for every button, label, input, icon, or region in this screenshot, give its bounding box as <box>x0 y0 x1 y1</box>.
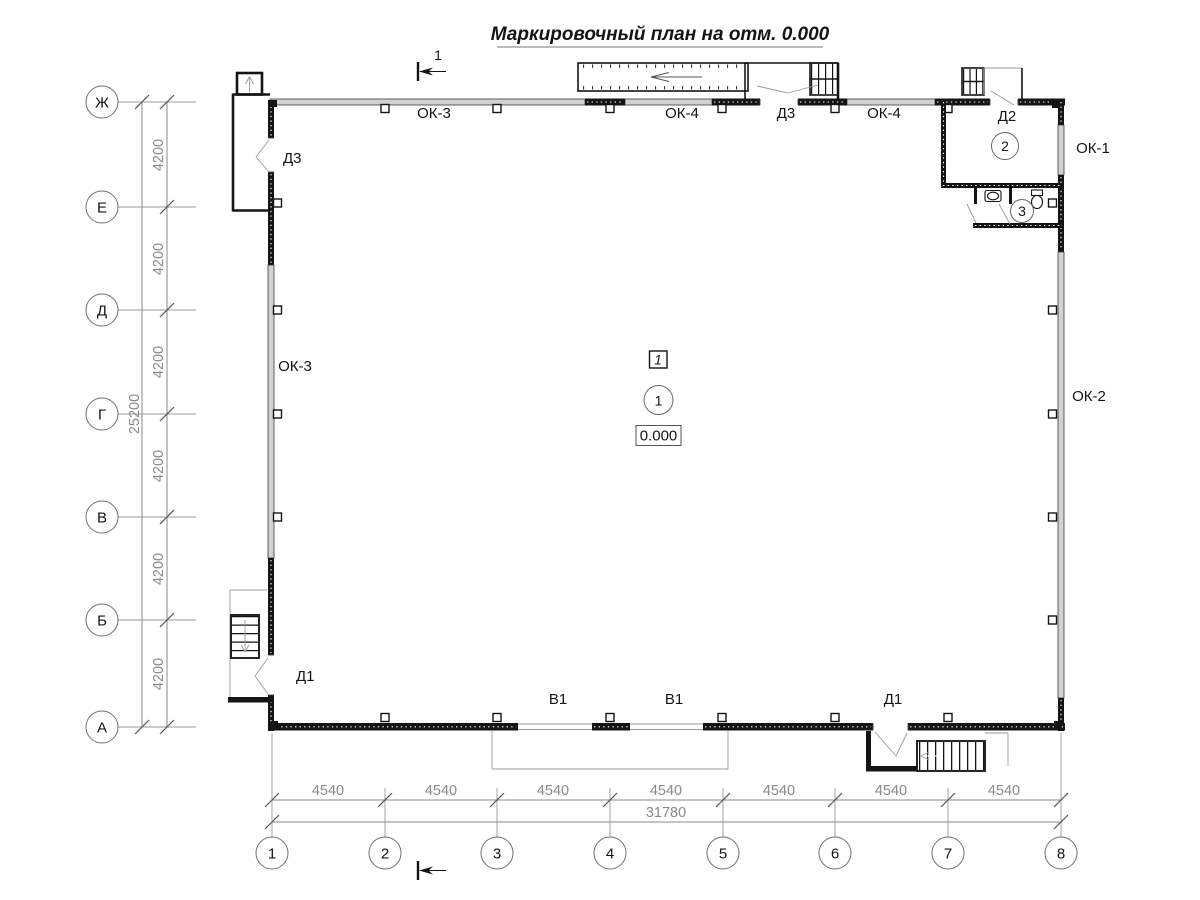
dim-row-5: 4200 <box>151 553 167 585</box>
opening-jambs <box>268 99 1018 731</box>
axis-row-g: Г <box>98 407 106 424</box>
dim-col-1: 4540 <box>312 783 344 799</box>
page-title: Маркировочный план на отм. 0.000 <box>491 24 830 45</box>
label-d3-top: Д3 <box>777 105 796 122</box>
section-number: 1 <box>434 47 442 63</box>
dim-col-5: 4540 <box>763 783 795 799</box>
floor-plan-canvas: Маркировочный план на отм. 0.000 <box>0 0 1200 900</box>
dim-col-total: 31780 <box>646 805 686 821</box>
pilasters-bottom <box>381 714 952 722</box>
dim-row-3: 4200 <box>151 346 167 378</box>
label-ok4-right: ОК-4 <box>867 105 901 122</box>
porch-bottom-left <box>228 590 273 703</box>
building-perimeter <box>268 99 1065 732</box>
elevation-value: 0.000 <box>640 428 678 445</box>
porch-bottom-right <box>866 731 1008 772</box>
dim-col-7: 4540 <box>988 783 1020 799</box>
axis-col-5: 5 <box>719 846 727 863</box>
axis-col-7: 7 <box>944 846 952 863</box>
col-spacing-dims: 4540 4540 4540 4540 4540 4540 4540 31780 <box>312 783 1020 821</box>
stair-entry-d2 <box>962 68 984 95</box>
dim-row-total: 25200 <box>127 394 143 434</box>
gate-apron <box>492 731 728 769</box>
door-swing-d3-top <box>757 85 818 93</box>
dim-col-2: 4540 <box>425 783 457 799</box>
loading-ramp <box>578 63 748 91</box>
door-swing-d1-left <box>255 658 268 694</box>
stair-top-d3 <box>810 63 838 95</box>
label-ok3-left: ОК-3 <box>278 358 312 375</box>
axis-col-8: 8 <box>1057 846 1065 863</box>
corner-columns <box>270 100 1061 728</box>
axis-col-2: 2 <box>381 846 389 863</box>
label-ok1: ОК-1 <box>1076 140 1110 157</box>
ramp-arrow-left <box>651 73 702 82</box>
label-d1-left: Д1 <box>296 668 315 685</box>
room1-number: 1 <box>655 393 663 409</box>
label-d2: Д2 <box>998 108 1017 125</box>
label-d1-right: Д1 <box>884 691 903 708</box>
door-swing-d3-left <box>256 140 269 172</box>
dim-col-3: 4540 <box>537 783 569 799</box>
drawing-title: Маркировочный план на отм. 0.000 <box>491 24 830 47</box>
label-ok3-top: ОК-3 <box>417 105 451 122</box>
vestibule-top-left <box>233 73 270 212</box>
axis-col-3: 3 <box>493 846 501 863</box>
room2-number: 2 <box>1001 138 1009 154</box>
label-d3-left: Д3 <box>283 150 302 167</box>
axis-row-v: В <box>97 510 107 527</box>
landing-outline <box>985 733 1008 766</box>
exit-arrow-up <box>246 77 254 93</box>
stair-arrow-left <box>921 752 941 760</box>
drawing-sheet: Маркировочный план на отм. 0.000 <box>0 0 1200 900</box>
col-axis-grid: 4540 4540 4540 4540 4540 4540 4540 31780… <box>256 733 1077 869</box>
entry-landing <box>984 68 1022 95</box>
dim-row-6: 4200 <box>151 658 167 690</box>
zone-mark-number: 1 <box>654 353 662 368</box>
label-ok2: ОК-2 <box>1072 388 1106 405</box>
door-swing-d2 <box>991 91 1014 105</box>
stair-bottom-right <box>917 741 985 771</box>
main-hall-markers: 1 1 0.000 <box>636 351 681 446</box>
dim-col-6: 4540 <box>875 783 907 799</box>
axis-col-1: 1 <box>268 846 276 863</box>
axis-row-d: Д <box>97 303 107 320</box>
label-v1-right: В1 <box>665 691 683 708</box>
dim-row-2: 4200 <box>151 243 167 275</box>
row-spacing-dims: 4200 4200 4200 4200 4200 4200 25200 <box>127 139 167 690</box>
col-axis-bubbles: 1 2 3 4 5 6 7 8 <box>256 837 1077 869</box>
section-mark-top: 1 <box>418 47 446 81</box>
dim-row-4: 4200 <box>151 450 167 482</box>
axis-col-4: 4 <box>606 846 614 863</box>
window-band-ok2 <box>1058 252 1064 698</box>
section-mark-bottom <box>418 861 446 880</box>
axis-row-a: А <box>97 720 107 737</box>
room3-number: 3 <box>1018 203 1026 219</box>
axis-col-6: 6 <box>831 846 839 863</box>
label-ok4-left: ОК-4 <box>665 105 699 122</box>
pilasters-right <box>1049 199 1057 624</box>
row-axis-bubbles: Ж Е Д Г В Б А <box>86 86 118 743</box>
axis-row-e: Е <box>97 200 107 217</box>
dim-row-1: 4200 <box>151 139 167 171</box>
door-swing-d1-right <box>875 732 907 756</box>
toilet-fixture <box>1032 190 1043 209</box>
window-band-ok1 <box>1058 125 1064 175</box>
axis-row-b: Б <box>97 613 107 630</box>
row-axis-grid: 4200 4200 4200 4200 4200 4200 25200 Ж Е … <box>86 86 196 743</box>
wc-door-swings <box>967 204 1010 224</box>
vestibule-top-d3 <box>745 63 838 100</box>
sink-fixture <box>985 191 1001 202</box>
stair-bottom-left <box>231 615 259 658</box>
axis-row-zh: Ж <box>95 95 109 112</box>
dim-col-4: 4540 <box>650 783 682 799</box>
label-v1-left: В1 <box>549 691 567 708</box>
